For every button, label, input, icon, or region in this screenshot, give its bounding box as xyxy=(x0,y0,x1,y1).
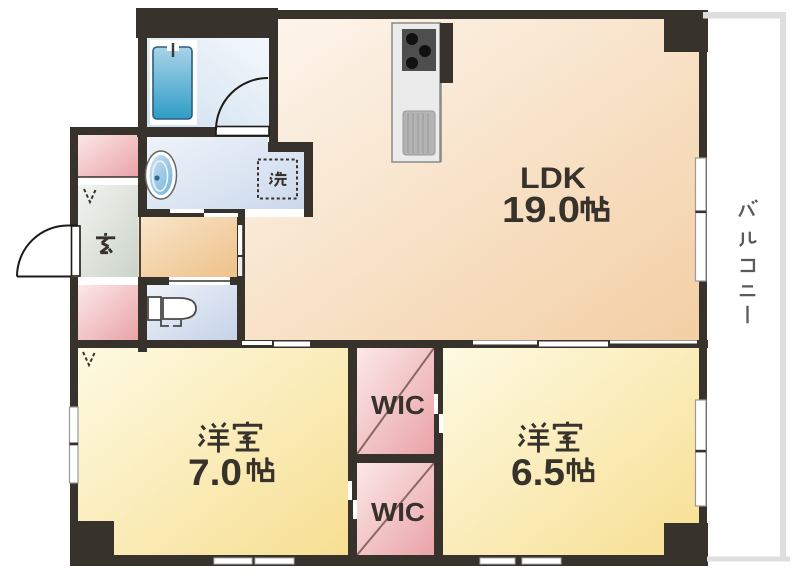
svg-text:WIC: WIC xyxy=(371,497,425,527)
svg-text:WIC: WIC xyxy=(371,390,425,420)
svg-text:7.0: 7.0 xyxy=(188,452,242,493)
svg-text:6.5: 6.5 xyxy=(511,452,565,493)
svg-text:19.0: 19.0 xyxy=(502,189,580,230)
